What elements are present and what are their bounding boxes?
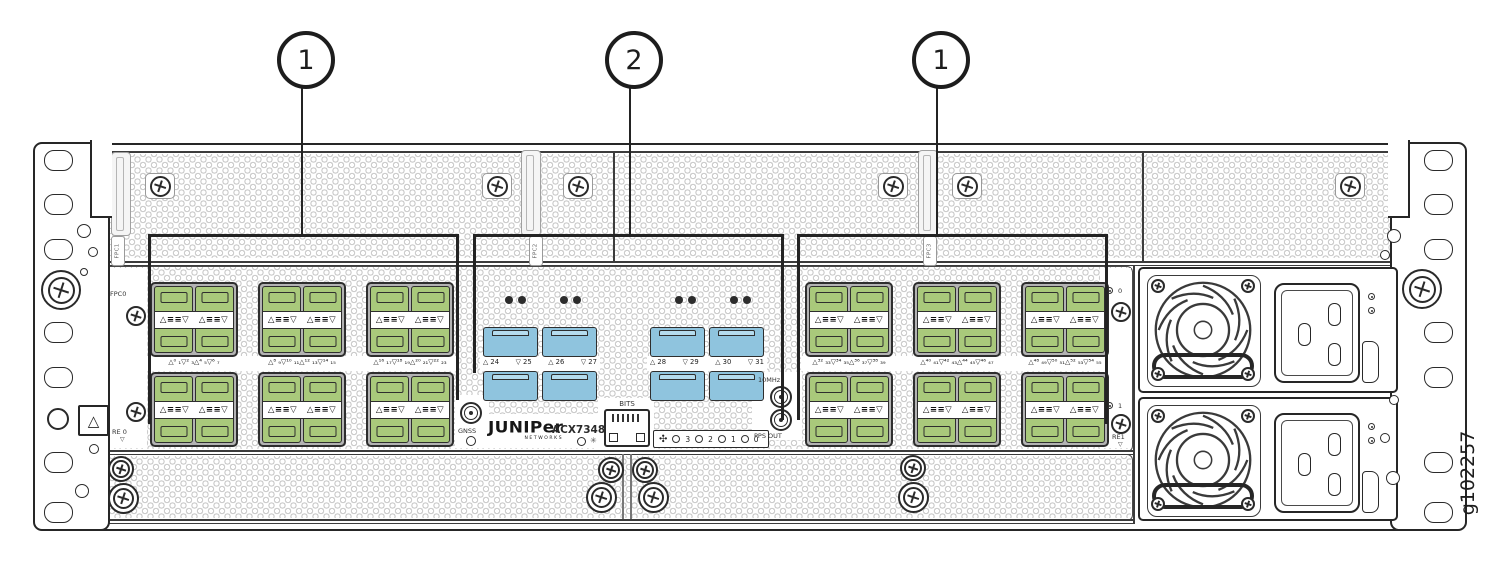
sfp-handle bbox=[160, 382, 187, 393]
callout-1-left: 1 bbox=[277, 31, 335, 89]
sfp-handle bbox=[376, 336, 403, 347]
callout-label: 1 bbox=[297, 45, 314, 76]
sfp-port-block: △≡≡▽△≡≡▽ bbox=[805, 282, 893, 357]
sfp-handle bbox=[856, 382, 883, 393]
rj45-tab bbox=[636, 433, 645, 442]
ear-hole bbox=[80, 268, 88, 276]
mounting-slot bbox=[1424, 452, 1453, 473]
psu-handle bbox=[1152, 483, 1254, 509]
port-led bbox=[505, 296, 513, 304]
rj45-pins bbox=[612, 414, 642, 422]
hardware-diagram: 1 2 1 FPC1 FPC2 FPC3 FPC0 RE 0 ▽ bbox=[0, 0, 1500, 583]
callout-bracket-leg bbox=[797, 234, 800, 420]
gnss-connector bbox=[460, 402, 482, 424]
port-led-strip: △≡≡▽△≡≡▽ bbox=[262, 311, 342, 329]
sfp-handle bbox=[160, 336, 187, 347]
sfp-handle bbox=[268, 292, 295, 303]
mounting-slot bbox=[44, 239, 73, 260]
sfp-port-block: △≡≡▽△≡≡▽ bbox=[258, 282, 346, 357]
chassis-rail bbox=[97, 450, 1135, 452]
right-ear-notch bbox=[1388, 140, 1410, 218]
sfp-handle bbox=[923, 382, 950, 393]
mounting-slot bbox=[1424, 239, 1453, 260]
psu-led bbox=[1368, 293, 1375, 300]
port-arrow-symbols: △≡≡▽ bbox=[962, 405, 991, 415]
panel-screw bbox=[1340, 176, 1361, 197]
sfp-port-block: △≡≡▽△≡≡▽ bbox=[150, 282, 238, 357]
sfp-handle bbox=[376, 292, 403, 303]
port-number-token: ▽ 27 bbox=[581, 358, 597, 366]
psu0-index-label: 0 bbox=[1118, 287, 1122, 295]
sfp-handle bbox=[309, 382, 336, 393]
sfp-handle bbox=[815, 382, 842, 393]
ear-screw bbox=[48, 277, 75, 304]
sfp-handle bbox=[417, 426, 444, 437]
port-led-strip: △≡≡▽△≡≡▽ bbox=[370, 401, 450, 419]
port-arrow-symbols: △≡≡▽ bbox=[923, 315, 952, 325]
port-arrow-symbols: △≡≡▽ bbox=[962, 315, 991, 325]
port-number-token: ▽ 31 bbox=[748, 358, 764, 366]
gnss-label: GNSS bbox=[458, 427, 476, 435]
slot-tag-label: FPC1 bbox=[115, 243, 121, 258]
sfp-handle bbox=[815, 426, 842, 437]
inlet-pin bbox=[1298, 323, 1311, 346]
sfp-handle bbox=[1031, 382, 1058, 393]
port-number-caption: △¹⁶ ₁₇▽¹⁸ ₁₉△²⁰ ₂₁▽²² ₂₃ bbox=[358, 358, 462, 366]
qsfp-port-pair bbox=[483, 327, 597, 357]
fan-status-led-box: ✣3210 bbox=[653, 430, 769, 448]
fan-led-label: 2 bbox=[708, 435, 713, 444]
port-arrow-symbols: △≡≡▽ bbox=[268, 405, 297, 415]
mounting-slot bbox=[44, 502, 73, 523]
port-arrow-symbols: △≡≡▽ bbox=[415, 315, 444, 325]
fpc0-thumbscrew bbox=[1111, 302, 1131, 322]
slot-tag-fpc2: FPC2 bbox=[529, 236, 543, 266]
bottom-panel-divider bbox=[630, 454, 632, 519]
fan-led bbox=[672, 435, 680, 443]
sfp-port-block: △≡≡▽△≡≡▽ bbox=[366, 282, 454, 357]
power-inlet-inner bbox=[1281, 420, 1353, 506]
mounting-slot bbox=[44, 150, 73, 171]
callout-1-right: 1 bbox=[912, 31, 970, 89]
sfp-handle bbox=[1072, 426, 1099, 437]
port-number-token: ▽ 29 bbox=[683, 358, 699, 366]
model-label: ACX7348 bbox=[552, 424, 605, 436]
ear-screw bbox=[1409, 276, 1436, 303]
callout-bracket-leg bbox=[148, 234, 151, 424]
port-led bbox=[743, 296, 751, 304]
fan-screw bbox=[1151, 497, 1165, 511]
chassis-rail bbox=[97, 151, 1403, 153]
ear-hole bbox=[88, 247, 98, 257]
sfp-port-block: △≡≡▽△≡≡▽ bbox=[366, 372, 454, 447]
pps-out-label: PPS OUT bbox=[754, 432, 782, 440]
fpc0-thumbscrew bbox=[126, 402, 146, 422]
port-number-token: △ 24 bbox=[483, 358, 499, 366]
port-number-token: ▽ 25 bbox=[516, 358, 532, 366]
re0-arrow: ▽ bbox=[120, 436, 125, 443]
psu-led bbox=[1368, 423, 1375, 430]
left-ear-notch bbox=[90, 140, 112, 218]
port-arrow-symbols: △≡≡▽ bbox=[160, 315, 189, 325]
sfp-handle bbox=[201, 336, 228, 347]
fpc-slot-divider bbox=[1142, 153, 1144, 261]
ear-hole bbox=[75, 484, 89, 498]
ear-hole bbox=[1387, 229, 1401, 243]
power-inlet bbox=[1274, 413, 1360, 513]
inlet-pin bbox=[1328, 343, 1341, 366]
port-led bbox=[688, 296, 696, 304]
port-arrow-symbols: △≡≡▽ bbox=[923, 405, 952, 415]
callout-label: 1 bbox=[932, 45, 949, 76]
port-number-caption: △⁴⁸ ₄₉▽⁵⁰ ₅₁△⁵² ₅₃▽⁵⁴ ₅₅ bbox=[1013, 358, 1117, 366]
port-arrow-symbols: △≡≡▽ bbox=[1031, 315, 1060, 325]
callout-bracket-leg bbox=[473, 234, 476, 373]
port-arrow-symbols: △≡≡▽ bbox=[854, 315, 883, 325]
chassis-rail bbox=[97, 261, 1403, 263]
callout-bracket-leg bbox=[781, 234, 784, 420]
sfp-handle bbox=[856, 292, 883, 303]
panel-screw bbox=[487, 176, 508, 197]
power-supply-1 bbox=[1138, 397, 1398, 521]
fan-led-label: 3 bbox=[685, 435, 690, 444]
port-arrow-symbols: △≡≡▽ bbox=[1070, 315, 1099, 325]
sfp-port-block: △≡≡▽△≡≡▽ bbox=[913, 372, 1001, 447]
sfp-handle bbox=[376, 426, 403, 437]
sfp-handle bbox=[160, 426, 187, 437]
inlet-pin bbox=[1328, 473, 1341, 496]
callout-label: 2 bbox=[625, 45, 642, 76]
mounting-slot bbox=[44, 452, 73, 473]
port-arrow-symbols: △≡≡▽ bbox=[307, 315, 336, 325]
sfp-port-block: △≡≡▽△≡≡▽ bbox=[150, 372, 238, 447]
slot-tag-fpc3: FPC3 bbox=[923, 236, 937, 266]
mounting-slot bbox=[44, 322, 73, 343]
sfp-handle bbox=[417, 292, 444, 303]
sfp-handle bbox=[964, 382, 991, 393]
re1-label: RE1 bbox=[1112, 433, 1125, 441]
sfp-handle bbox=[201, 292, 228, 303]
sfp-handle bbox=[964, 426, 991, 437]
ear-hole bbox=[89, 444, 99, 454]
port-arrow-symbols: △≡≡▽ bbox=[376, 315, 405, 325]
inlet-pin bbox=[1328, 433, 1341, 456]
sfp-handle bbox=[856, 336, 883, 347]
sfp-handle bbox=[268, 336, 295, 347]
sfp-handle bbox=[964, 292, 991, 303]
port-arrow-symbols: △≡≡▽ bbox=[815, 315, 844, 325]
sfp-handle bbox=[268, 426, 295, 437]
rj45-tab bbox=[609, 433, 618, 442]
chassis-rail bbox=[97, 519, 1135, 521]
mounting-slot bbox=[44, 367, 73, 388]
port-arrow-symbols: △≡≡▽ bbox=[815, 405, 844, 415]
sfp-handle bbox=[417, 336, 444, 347]
port-led bbox=[560, 296, 568, 304]
fpc-slot-divider bbox=[613, 153, 615, 261]
sfp-handle bbox=[1072, 292, 1099, 303]
fan-led-label: 1 bbox=[731, 435, 736, 444]
fan-screw bbox=[1151, 367, 1165, 381]
port-number-caption: △³² ₃₃▽³⁴ ₃₅△³⁶ ₃₇▽³⁸ ₃₉ bbox=[797, 358, 901, 366]
sfp-handle bbox=[923, 292, 950, 303]
port-led bbox=[675, 296, 683, 304]
mounting-slot bbox=[1424, 194, 1453, 215]
system-led bbox=[577, 437, 586, 446]
captive-screw bbox=[643, 487, 664, 508]
callout-bracket-leg bbox=[1105, 234, 1108, 424]
psu-led bbox=[1368, 307, 1375, 314]
slot-tag-label: FPC2 bbox=[533, 243, 539, 258]
port-led-strip: △≡≡▽△≡≡▽ bbox=[1025, 311, 1105, 329]
re0-label: RE 0 bbox=[112, 428, 127, 436]
port-led bbox=[518, 296, 526, 304]
captive-screw bbox=[591, 487, 612, 508]
port-led-strip: △≡≡▽△≡≡▽ bbox=[262, 401, 342, 419]
sfp-handle bbox=[1072, 382, 1099, 393]
slot-tag-fpc1: FPC1 bbox=[111, 236, 125, 266]
qsfp-port-pair bbox=[483, 371, 597, 401]
port-number-caption: △⁰ ₁▽² ₃△⁴ ₅▽⁶ ₇ bbox=[142, 358, 246, 366]
ear-hole bbox=[1380, 433, 1390, 443]
power-inlet-inner bbox=[1281, 290, 1353, 376]
captive-screw bbox=[903, 487, 924, 508]
sfp-handle bbox=[815, 336, 842, 347]
sfp-handle bbox=[309, 292, 336, 303]
ear-hole bbox=[1386, 471, 1400, 485]
port-led-strip: △≡≡▽△≡≡▽ bbox=[917, 401, 997, 419]
callout-leader-line bbox=[629, 84, 631, 235]
system-led-symbol: ✳ bbox=[590, 436, 597, 445]
qsfp-port-pair bbox=[650, 371, 764, 401]
port-led-strip: △≡≡▽△≡≡▽ bbox=[809, 311, 889, 329]
panel-screw bbox=[883, 176, 904, 197]
sfp-port-block: △≡≡▽△≡≡▽ bbox=[805, 372, 893, 447]
sfp-handle bbox=[923, 336, 950, 347]
panel-screw bbox=[568, 176, 589, 197]
port-led-strip: △≡≡▽△≡≡▽ bbox=[370, 311, 450, 329]
qsfp-cage bbox=[542, 371, 597, 401]
slot-tag-label: FPC3 bbox=[927, 243, 933, 258]
qsfp-cage bbox=[650, 327, 705, 357]
sfp-handle bbox=[201, 426, 228, 437]
port-arrow-symbols: △≡≡▽ bbox=[199, 405, 228, 415]
sfp-handle bbox=[417, 382, 444, 393]
sfp-handle bbox=[160, 292, 187, 303]
sfp-handle bbox=[1031, 426, 1058, 437]
callout-leader-line bbox=[301, 84, 303, 235]
port-number-token: △ 30 bbox=[715, 358, 731, 366]
inlet-pin bbox=[1298, 453, 1311, 476]
fan-screw bbox=[1241, 497, 1255, 511]
mounting-slot bbox=[1424, 322, 1453, 343]
port-number-caption: △ 28▽ 29△ 30▽ 31 bbox=[650, 358, 764, 366]
port-number-token: △ 26 bbox=[548, 358, 564, 366]
power-supply-0 bbox=[1138, 267, 1398, 393]
sfp-handle bbox=[856, 426, 883, 437]
psu-handle bbox=[1152, 353, 1254, 379]
mounting-slot bbox=[1424, 150, 1453, 171]
thumbscrew bbox=[636, 461, 654, 479]
panel-screw bbox=[957, 176, 978, 197]
sfp-handle bbox=[201, 382, 228, 393]
fan-screw bbox=[1151, 279, 1165, 293]
port-led-strip: △≡≡▽△≡≡▽ bbox=[917, 311, 997, 329]
callout-bracket bbox=[473, 234, 784, 237]
callout-bracket-leg bbox=[456, 234, 459, 400]
ejector-lever bbox=[521, 150, 541, 236]
captive-screw bbox=[113, 488, 134, 509]
thumbscrew bbox=[112, 460, 130, 478]
qsfp-cage bbox=[709, 327, 764, 357]
callout-2: 2 bbox=[605, 31, 663, 89]
re1-arrow: ▽ bbox=[1118, 441, 1123, 448]
fan-led bbox=[741, 435, 749, 443]
sfp-handle bbox=[309, 426, 336, 437]
figure-id: g102257 bbox=[1457, 417, 1479, 529]
port-led bbox=[730, 296, 738, 304]
sfp-handle bbox=[1031, 336, 1058, 347]
esd-symbol: △ bbox=[78, 405, 109, 436]
fan-screw bbox=[1151, 409, 1165, 423]
psu1-index-label: 1 bbox=[1118, 402, 1122, 410]
chassis-rail bbox=[97, 265, 1403, 267]
thumbscrew bbox=[904, 459, 922, 477]
fan-led bbox=[718, 435, 726, 443]
bits-rj45-port bbox=[604, 409, 650, 447]
sfp-handle bbox=[1031, 292, 1058, 303]
callout-bracket bbox=[148, 234, 459, 237]
sfp-port-block: △≡≡▽△≡≡▽ bbox=[913, 282, 1001, 357]
fan-screw bbox=[1241, 279, 1255, 293]
port-led-strip: △≡≡▽△≡≡▽ bbox=[1025, 401, 1105, 419]
psu-led bbox=[1368, 437, 1375, 444]
gnss-led bbox=[466, 436, 476, 446]
qsfp-cage bbox=[650, 371, 705, 401]
ejector-lever bbox=[918, 150, 938, 236]
thumbscrew bbox=[602, 461, 620, 479]
port-led-strip: △≡≡▽△≡≡▽ bbox=[154, 401, 234, 419]
port-arrow-symbols: △≡≡▽ bbox=[376, 405, 405, 415]
qsfp-port-pair bbox=[650, 327, 764, 357]
sfp-handle bbox=[964, 336, 991, 347]
mounting-slot bbox=[44, 194, 73, 215]
sfp-handle bbox=[268, 382, 295, 393]
fpc-slot-blank-panel bbox=[99, 154, 1401, 258]
port-number-caption: △⁸ ₉▽¹⁰ ₁₁△¹² ₁₃▽¹⁴ ₁₅ bbox=[250, 358, 354, 366]
port-led-strip: △≡≡▽△≡≡▽ bbox=[809, 401, 889, 419]
port-number-caption: △ 24▽ 25△ 26▽ 27 bbox=[483, 358, 597, 366]
sfp-port-block: △≡≡▽△≡≡▽ bbox=[1021, 372, 1109, 447]
sfp-handle bbox=[923, 426, 950, 437]
sfp-handle bbox=[815, 292, 842, 303]
port-arrow-symbols: △≡≡▽ bbox=[199, 315, 228, 325]
esd-jack bbox=[47, 408, 69, 430]
fan-led bbox=[695, 435, 703, 443]
fpc0-label: FPC0 bbox=[110, 290, 126, 298]
mhz10-label: 10MHz bbox=[758, 376, 780, 384]
mounting-slot bbox=[1424, 367, 1453, 388]
port-arrow-symbols: △≡≡▽ bbox=[854, 405, 883, 415]
fpc0-thumbscrew bbox=[1111, 414, 1131, 434]
chassis-rail bbox=[97, 523, 1135, 525]
port-arrow-symbols: △≡≡▽ bbox=[307, 405, 336, 415]
port-number-token: △ 28 bbox=[650, 358, 666, 366]
ear-hole bbox=[1389, 395, 1399, 405]
psu-bay-divider bbox=[1133, 265, 1135, 523]
qsfp-cage bbox=[483, 327, 538, 357]
panel-screw bbox=[150, 176, 171, 197]
sfp-port-block: △≡≡▽△≡≡▽ bbox=[258, 372, 346, 447]
bits-label: BITS bbox=[600, 400, 654, 408]
psu-latch bbox=[1362, 341, 1379, 383]
sfp-handle bbox=[376, 382, 403, 393]
fan-icon: ✣ bbox=[659, 434, 667, 445]
fan-screw bbox=[1241, 409, 1255, 423]
fan-screw bbox=[1241, 367, 1255, 381]
sfp-handle bbox=[309, 336, 336, 347]
port-arrow-symbols: △≡≡▽ bbox=[1070, 405, 1099, 415]
sfp-handle bbox=[1072, 336, 1099, 347]
qsfp-cage bbox=[709, 371, 764, 401]
ejector-lever bbox=[111, 152, 131, 236]
port-arrow-symbols: △≡≡▽ bbox=[1031, 405, 1060, 415]
port-arrow-symbols: △≡≡▽ bbox=[415, 405, 444, 415]
ear-hole bbox=[1380, 250, 1390, 260]
psu-latch bbox=[1362, 471, 1379, 513]
fpc0-thumbscrew bbox=[126, 306, 146, 326]
sfp-port-block: △≡≡▽△≡≡▽ bbox=[1021, 282, 1109, 357]
port-led bbox=[573, 296, 581, 304]
power-inlet bbox=[1274, 283, 1360, 383]
callout-bracket bbox=[797, 234, 1108, 237]
mounting-slot bbox=[1424, 502, 1453, 523]
ear-hole bbox=[77, 224, 91, 238]
port-number-caption: △⁴⁰ ₄₁▽⁴² ₄₃△⁴⁴ ₄₅▽⁴⁶ ₄₇ bbox=[905, 358, 1009, 366]
port-arrow-symbols: △≡≡▽ bbox=[268, 315, 297, 325]
qsfp-cage bbox=[542, 327, 597, 357]
qsfp-cage bbox=[483, 371, 538, 401]
callout-leader-line bbox=[936, 84, 938, 235]
port-arrow-symbols: △≡≡▽ bbox=[160, 405, 189, 415]
chassis-rail bbox=[97, 454, 1135, 456]
inlet-pin bbox=[1328, 303, 1341, 326]
port-led-strip: △≡≡▽△≡≡▽ bbox=[154, 311, 234, 329]
